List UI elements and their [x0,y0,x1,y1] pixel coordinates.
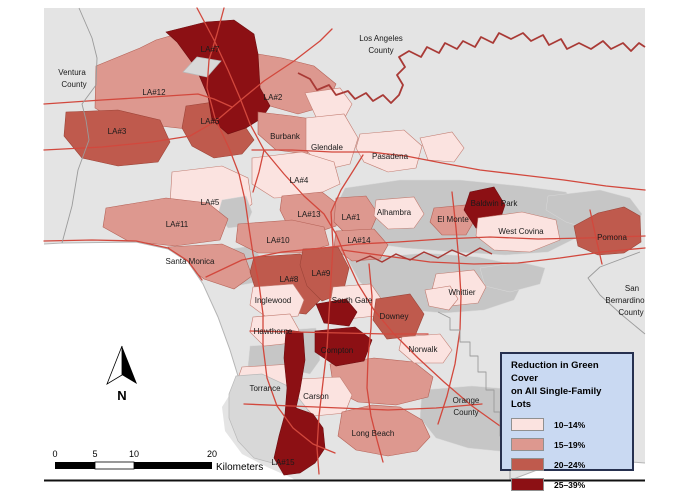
legend-row: 20–24% [511,458,623,471]
legend: Reduction in Green Cover on All Single-F… [500,352,634,471]
map-label: Baldwin Park [471,199,519,208]
map-label: Whittier [448,288,475,297]
legend-class-label: 20–24% [554,460,585,470]
map-label: County [618,308,643,317]
map-label: LA#7 [201,45,220,54]
scale-bar-segment [134,462,212,469]
map-label: Los Angeles [359,34,403,43]
legend-title: Reduction in Green Cover on All Single-F… [511,359,623,411]
map-label: County [61,80,86,89]
map-label: Burbank [270,132,301,141]
map-label: Bernardino [605,296,645,305]
scale-bar-segment [55,462,95,469]
legend-row: 15–19% [511,438,623,451]
map-label: El Monte [437,215,469,224]
map-label: Ventura [58,68,86,77]
map-label: LA#5 [201,198,220,207]
scale-tick: 5 [92,449,97,459]
legend-swatch [511,458,544,471]
map-label: LA#4 [290,176,309,185]
map-label: Inglewood [255,296,291,305]
map-label: West Covina [498,227,544,236]
scale-tick: 10 [129,449,139,459]
map-label: LA#1 [342,213,361,222]
map-label: South Gate [332,296,373,305]
legend-title-line2: on All Single-Family Lots [511,385,623,411]
map-label: LA#3 [108,127,127,136]
map-label: Glendale [311,143,344,152]
map-label: Orange [453,396,480,405]
map-label: County [368,46,393,55]
map-label: LA#11 [166,220,189,229]
map-label: Santa Monica [166,257,215,266]
map-figure: VenturaCountyLos AngelesCountyLA#7LA#12L… [0,0,683,501]
map-label: Torrance [249,384,281,393]
map-label: LA#12 [142,88,166,97]
map-label: LA#15 [271,458,295,467]
map-label: Alhambra [377,208,412,217]
map-label: Downey [380,312,409,321]
legend-class-label: 15–19% [554,440,585,450]
legend-title-line1: Reduction in Green Cover [511,359,623,385]
map-label: County [453,408,478,417]
map-label: Carson [303,392,329,401]
map-label: LA#6 [201,117,220,126]
legend-class-label: 10–14% [554,420,585,430]
scale-unit: Kilometers [216,462,263,473]
map-label: Pomona [597,233,627,242]
map-label: LA#2 [264,93,283,102]
legend-row: 25–39% [511,478,623,491]
scale-tick: 0 [52,449,57,459]
scale-bar-segment [95,462,134,469]
legend-swatch [511,478,544,491]
map-label: LA#8 [280,275,299,284]
map-label: LA#10 [266,236,290,245]
map-label: Pasadena [372,152,409,161]
map-label: Norwalk [409,345,439,354]
legend-swatch [511,418,544,431]
map-label: LA#13 [297,210,321,219]
legend-row: 10–14% [511,418,623,431]
map-label: LA#14 [347,236,371,245]
map-label: Hawthorne [254,327,293,336]
legend-class-label: 25–39% [554,480,585,490]
map-label: Compton [321,346,353,355]
north-arrow-label: N [117,388,126,403]
scale-tick: 20 [207,449,217,459]
map-label: LA#9 [312,269,331,278]
map-label: San [625,284,639,293]
map-label: Long Beach [352,429,395,438]
legend-swatch [511,438,544,451]
